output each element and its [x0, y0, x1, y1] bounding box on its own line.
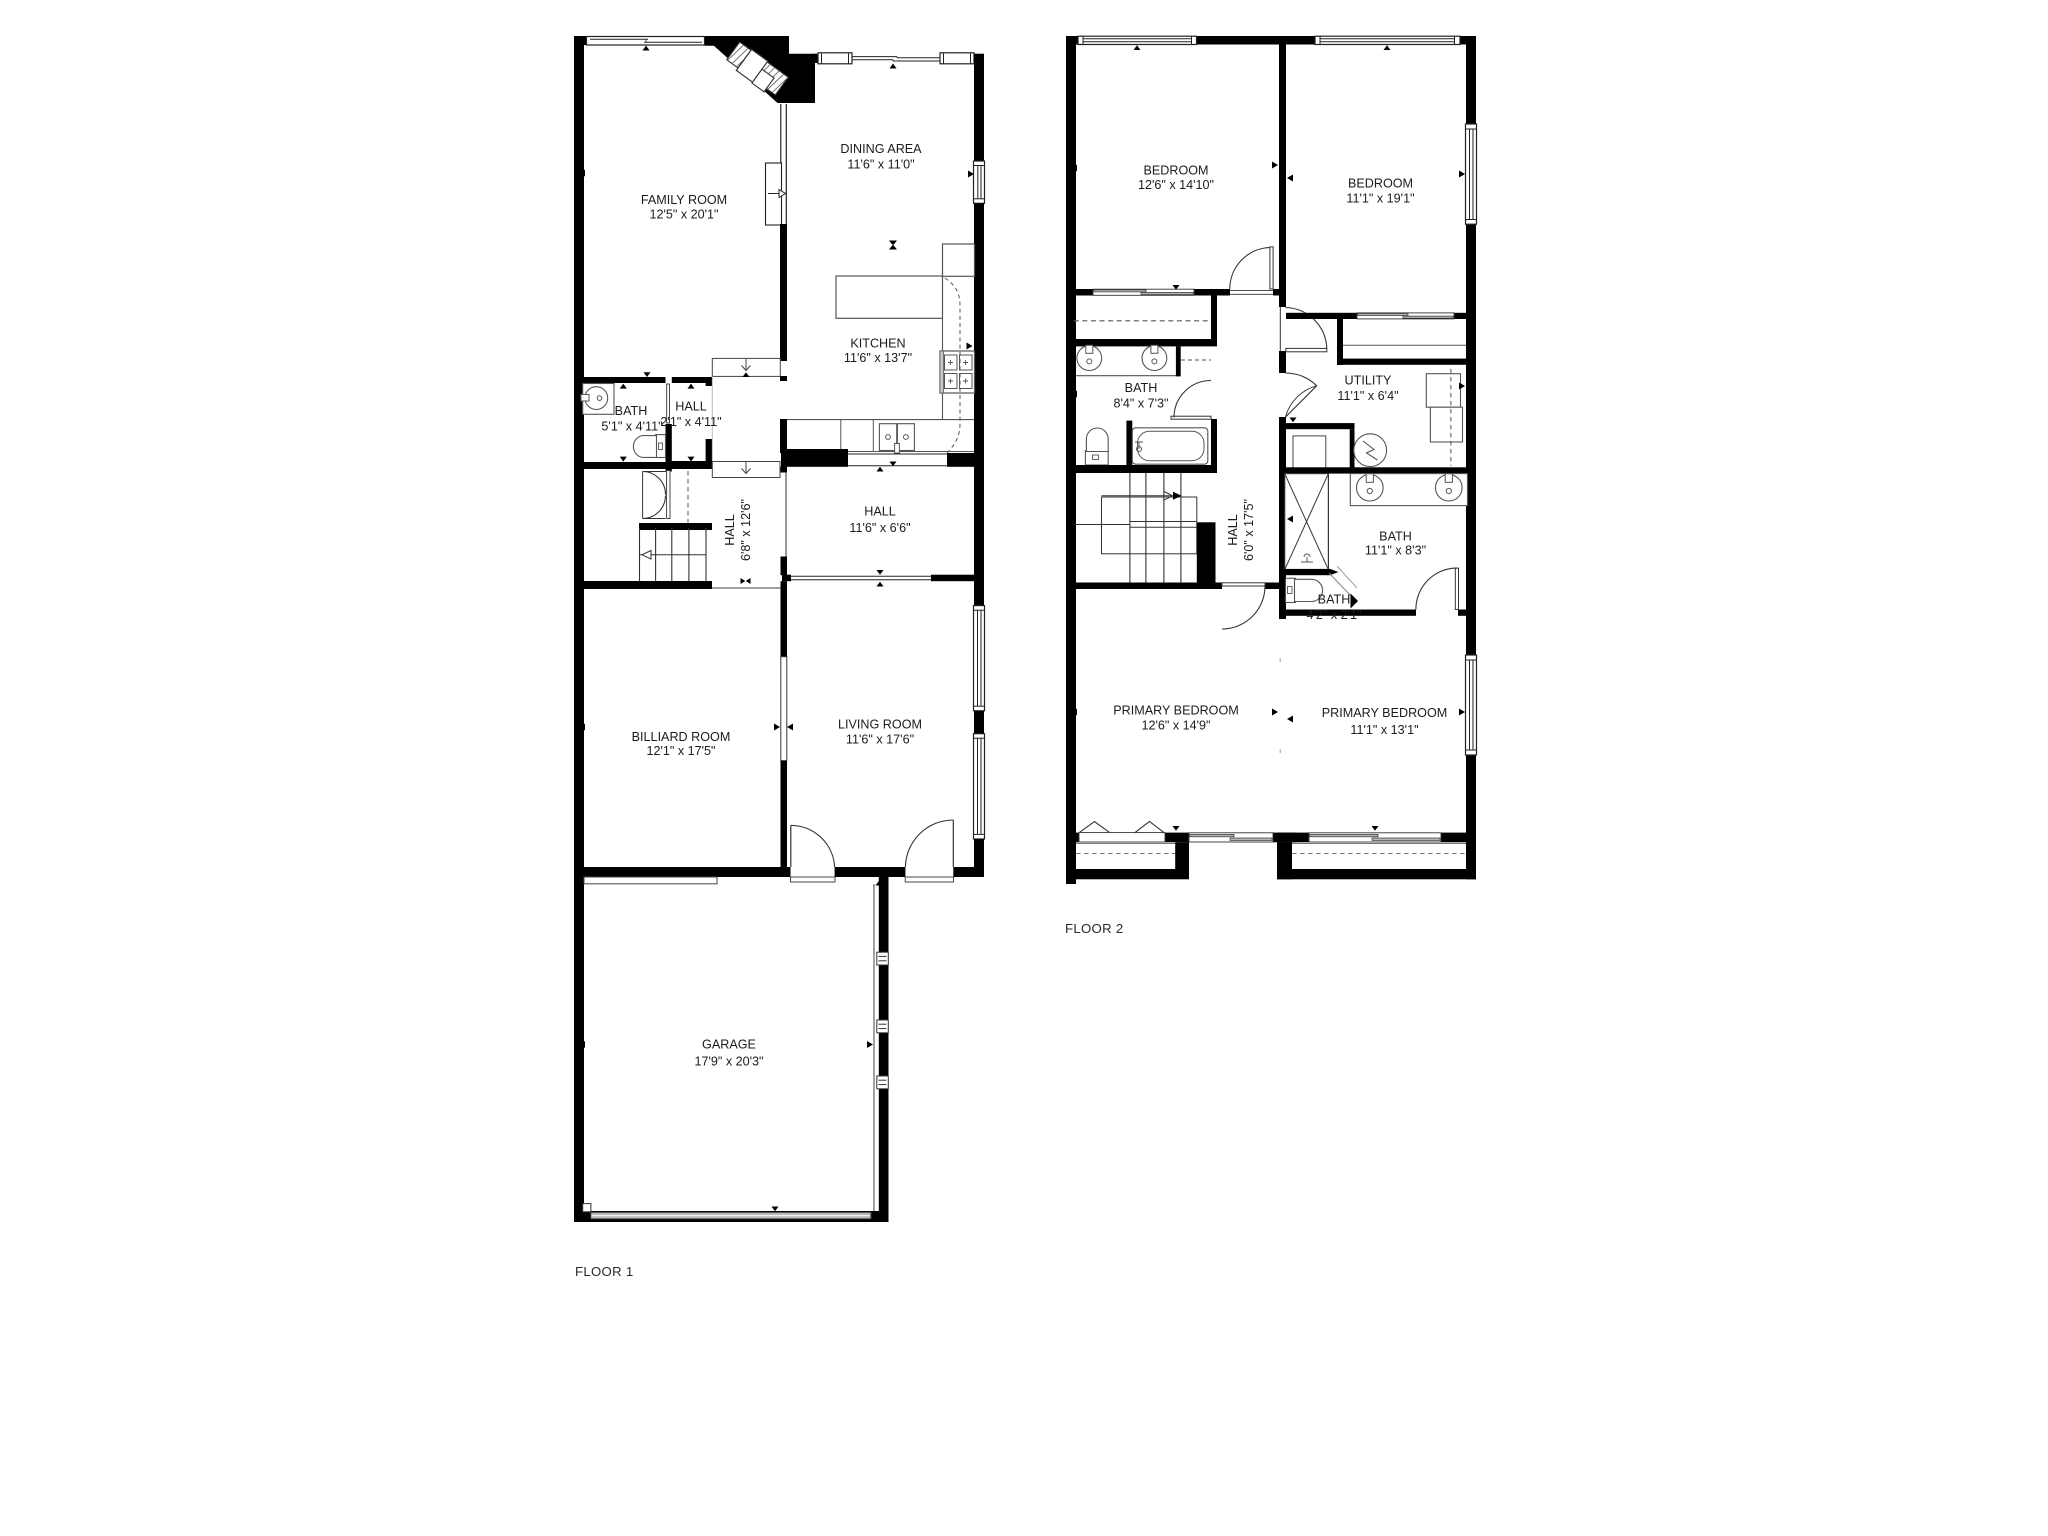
svg-text:BATH: BATH: [1379, 530, 1412, 544]
svg-text:HALL: HALL: [675, 400, 707, 414]
svg-text:KITCHEN: KITCHEN: [850, 337, 905, 351]
svg-text:2'1" x 4'11": 2'1" x 4'11": [660, 415, 721, 429]
svg-text:BEDROOM: BEDROOM: [1348, 177, 1413, 191]
svg-text:11'6" x 6'6": 11'6" x 6'6": [849, 521, 910, 535]
svg-text:5'1" x 4'11": 5'1" x 4'11": [601, 420, 662, 434]
svg-text:6'0" x 17'5": 6'0" x 17'5": [1242, 499, 1256, 561]
svg-text:11'1" x 19'1": 11'1" x 19'1": [1346, 192, 1414, 206]
svg-text:LIVING ROOM: LIVING ROOM: [838, 718, 922, 732]
svg-text:BATH: BATH: [1125, 381, 1158, 395]
svg-text:FLOOR 1: FLOOR 1: [575, 1264, 634, 1279]
svg-text:UTILITY: UTILITY: [1345, 374, 1392, 388]
svg-text:BILLIARD ROOM: BILLIARD ROOM: [632, 730, 731, 744]
svg-text:BATH: BATH: [615, 404, 648, 418]
svg-text:FAMILY ROOM: FAMILY ROOM: [641, 193, 727, 207]
svg-text:HALL: HALL: [723, 514, 737, 546]
svg-text:8'4" x 7'3": 8'4" x 7'3": [1113, 397, 1168, 411]
svg-text:6'8" x 12'6": 6'8" x 12'6": [739, 499, 753, 561]
svg-text:PRIMARY BEDROOM: PRIMARY BEDROOM: [1113, 704, 1239, 718]
svg-text:17'9" x 20'3": 17'9" x 20'3": [694, 1055, 763, 1069]
svg-text:4'2" x 2'1": 4'2" x 2'1": [1306, 608, 1361, 622]
svg-text:11'6" x 17'6": 11'6" x 17'6": [846, 733, 914, 747]
svg-text:PRIMARY BEDROOM: PRIMARY BEDROOM: [1322, 706, 1448, 720]
svg-text:HALL: HALL: [1226, 514, 1240, 546]
svg-text:12'1" x 17'5": 12'1" x 17'5": [646, 744, 715, 758]
svg-text:12'5" x 20'1": 12'5" x 20'1": [649, 208, 718, 222]
svg-text:BATH: BATH: [1318, 593, 1351, 607]
svg-text:FLOOR 2: FLOOR 2: [1065, 921, 1124, 936]
svg-text:HALL: HALL: [864, 505, 896, 519]
svg-text:11'6" x 13'7": 11'6" x 13'7": [844, 351, 912, 365]
svg-text:GARAGE: GARAGE: [702, 1038, 756, 1052]
svg-text:BEDROOM: BEDROOM: [1143, 164, 1208, 178]
svg-text:12'6" x 14'10": 12'6" x 14'10": [1138, 178, 1214, 192]
svg-text:11'6" x 11'0": 11'6" x 11'0": [847, 158, 914, 172]
svg-text:11'1" x 6'4": 11'1" x 6'4": [1337, 389, 1398, 403]
svg-text:11'1" x 8'3": 11'1" x 8'3": [1365, 544, 1426, 558]
svg-text:DINING AREA: DINING AREA: [840, 142, 922, 156]
svg-text:11'1" x 13'1": 11'1" x 13'1": [1350, 723, 1418, 737]
svg-text:12'6" x 14'9": 12'6" x 14'9": [1141, 719, 1210, 733]
